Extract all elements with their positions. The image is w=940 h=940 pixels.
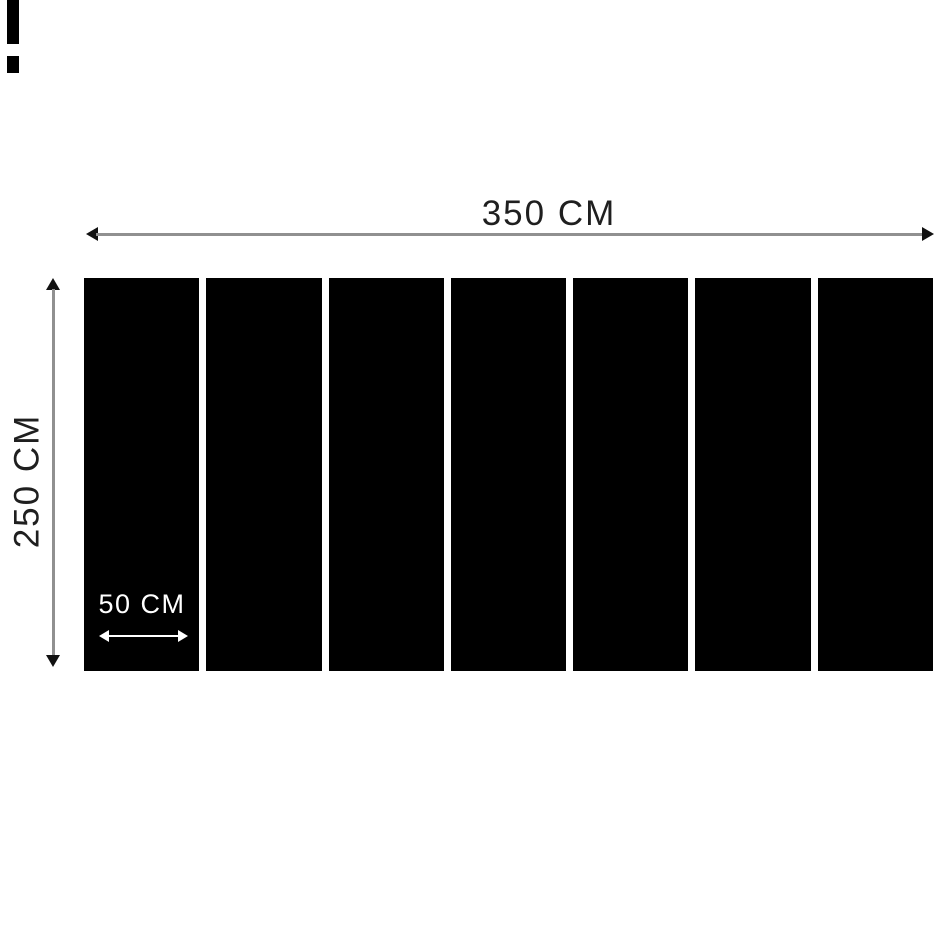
panel-6 [695, 278, 810, 671]
panel-5 [573, 278, 688, 671]
panel-7 [818, 278, 933, 671]
height-arrow-line [52, 289, 55, 656]
arrowhead-right-icon [178, 630, 188, 642]
image-edge-fragment [7, 0, 19, 44]
total-height-label: 250 CM [10, 414, 45, 549]
panel-4 [451, 278, 566, 671]
total-width-label: 350 CM [482, 196, 617, 231]
arrowhead-down-icon [46, 655, 60, 667]
panel-width-label: 50 CM [98, 591, 185, 618]
arrowhead-right-icon [922, 227, 934, 241]
panel-strip [84, 278, 933, 671]
panel-arrow-line [108, 635, 178, 637]
panel-3 [329, 278, 444, 671]
width-arrow-line [96, 233, 922, 236]
panel-2 [206, 278, 321, 671]
dimension-diagram-canvas: 350 CM 250 CM 50 CM [0, 0, 940, 940]
image-edge-fragment [7, 56, 19, 73]
